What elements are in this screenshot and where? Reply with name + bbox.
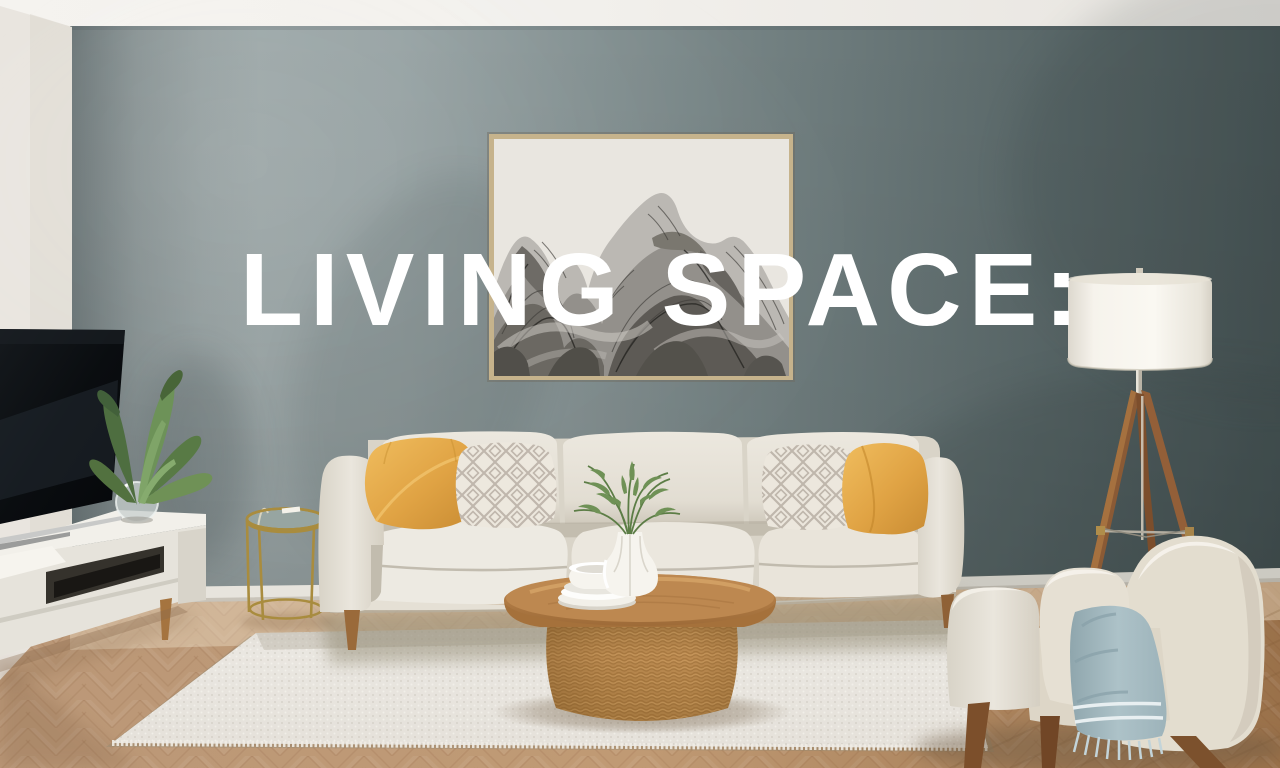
svg-text:LIVING SPACE:: LIVING SPACE: xyxy=(240,232,1086,347)
